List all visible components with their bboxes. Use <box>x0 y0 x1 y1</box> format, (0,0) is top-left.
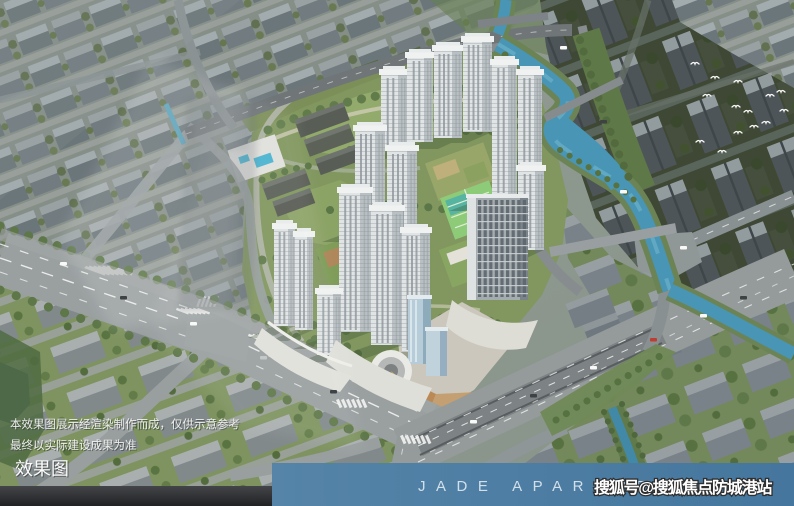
svg-text:本效果图展示经渲染制作而成，仅供示意参考: 本效果图展示经渲染制作而成，仅供示意参考 <box>10 417 240 431</box>
svg-text:效果图: 效果图 <box>15 459 69 479</box>
svg-text:最终以实际建设成果为准: 最终以实际建设成果为准 <box>10 438 137 452</box>
svg-text:搜狐号@搜狐焦点防城港站: 搜狐号@搜狐焦点防城港站 <box>594 478 772 497</box>
